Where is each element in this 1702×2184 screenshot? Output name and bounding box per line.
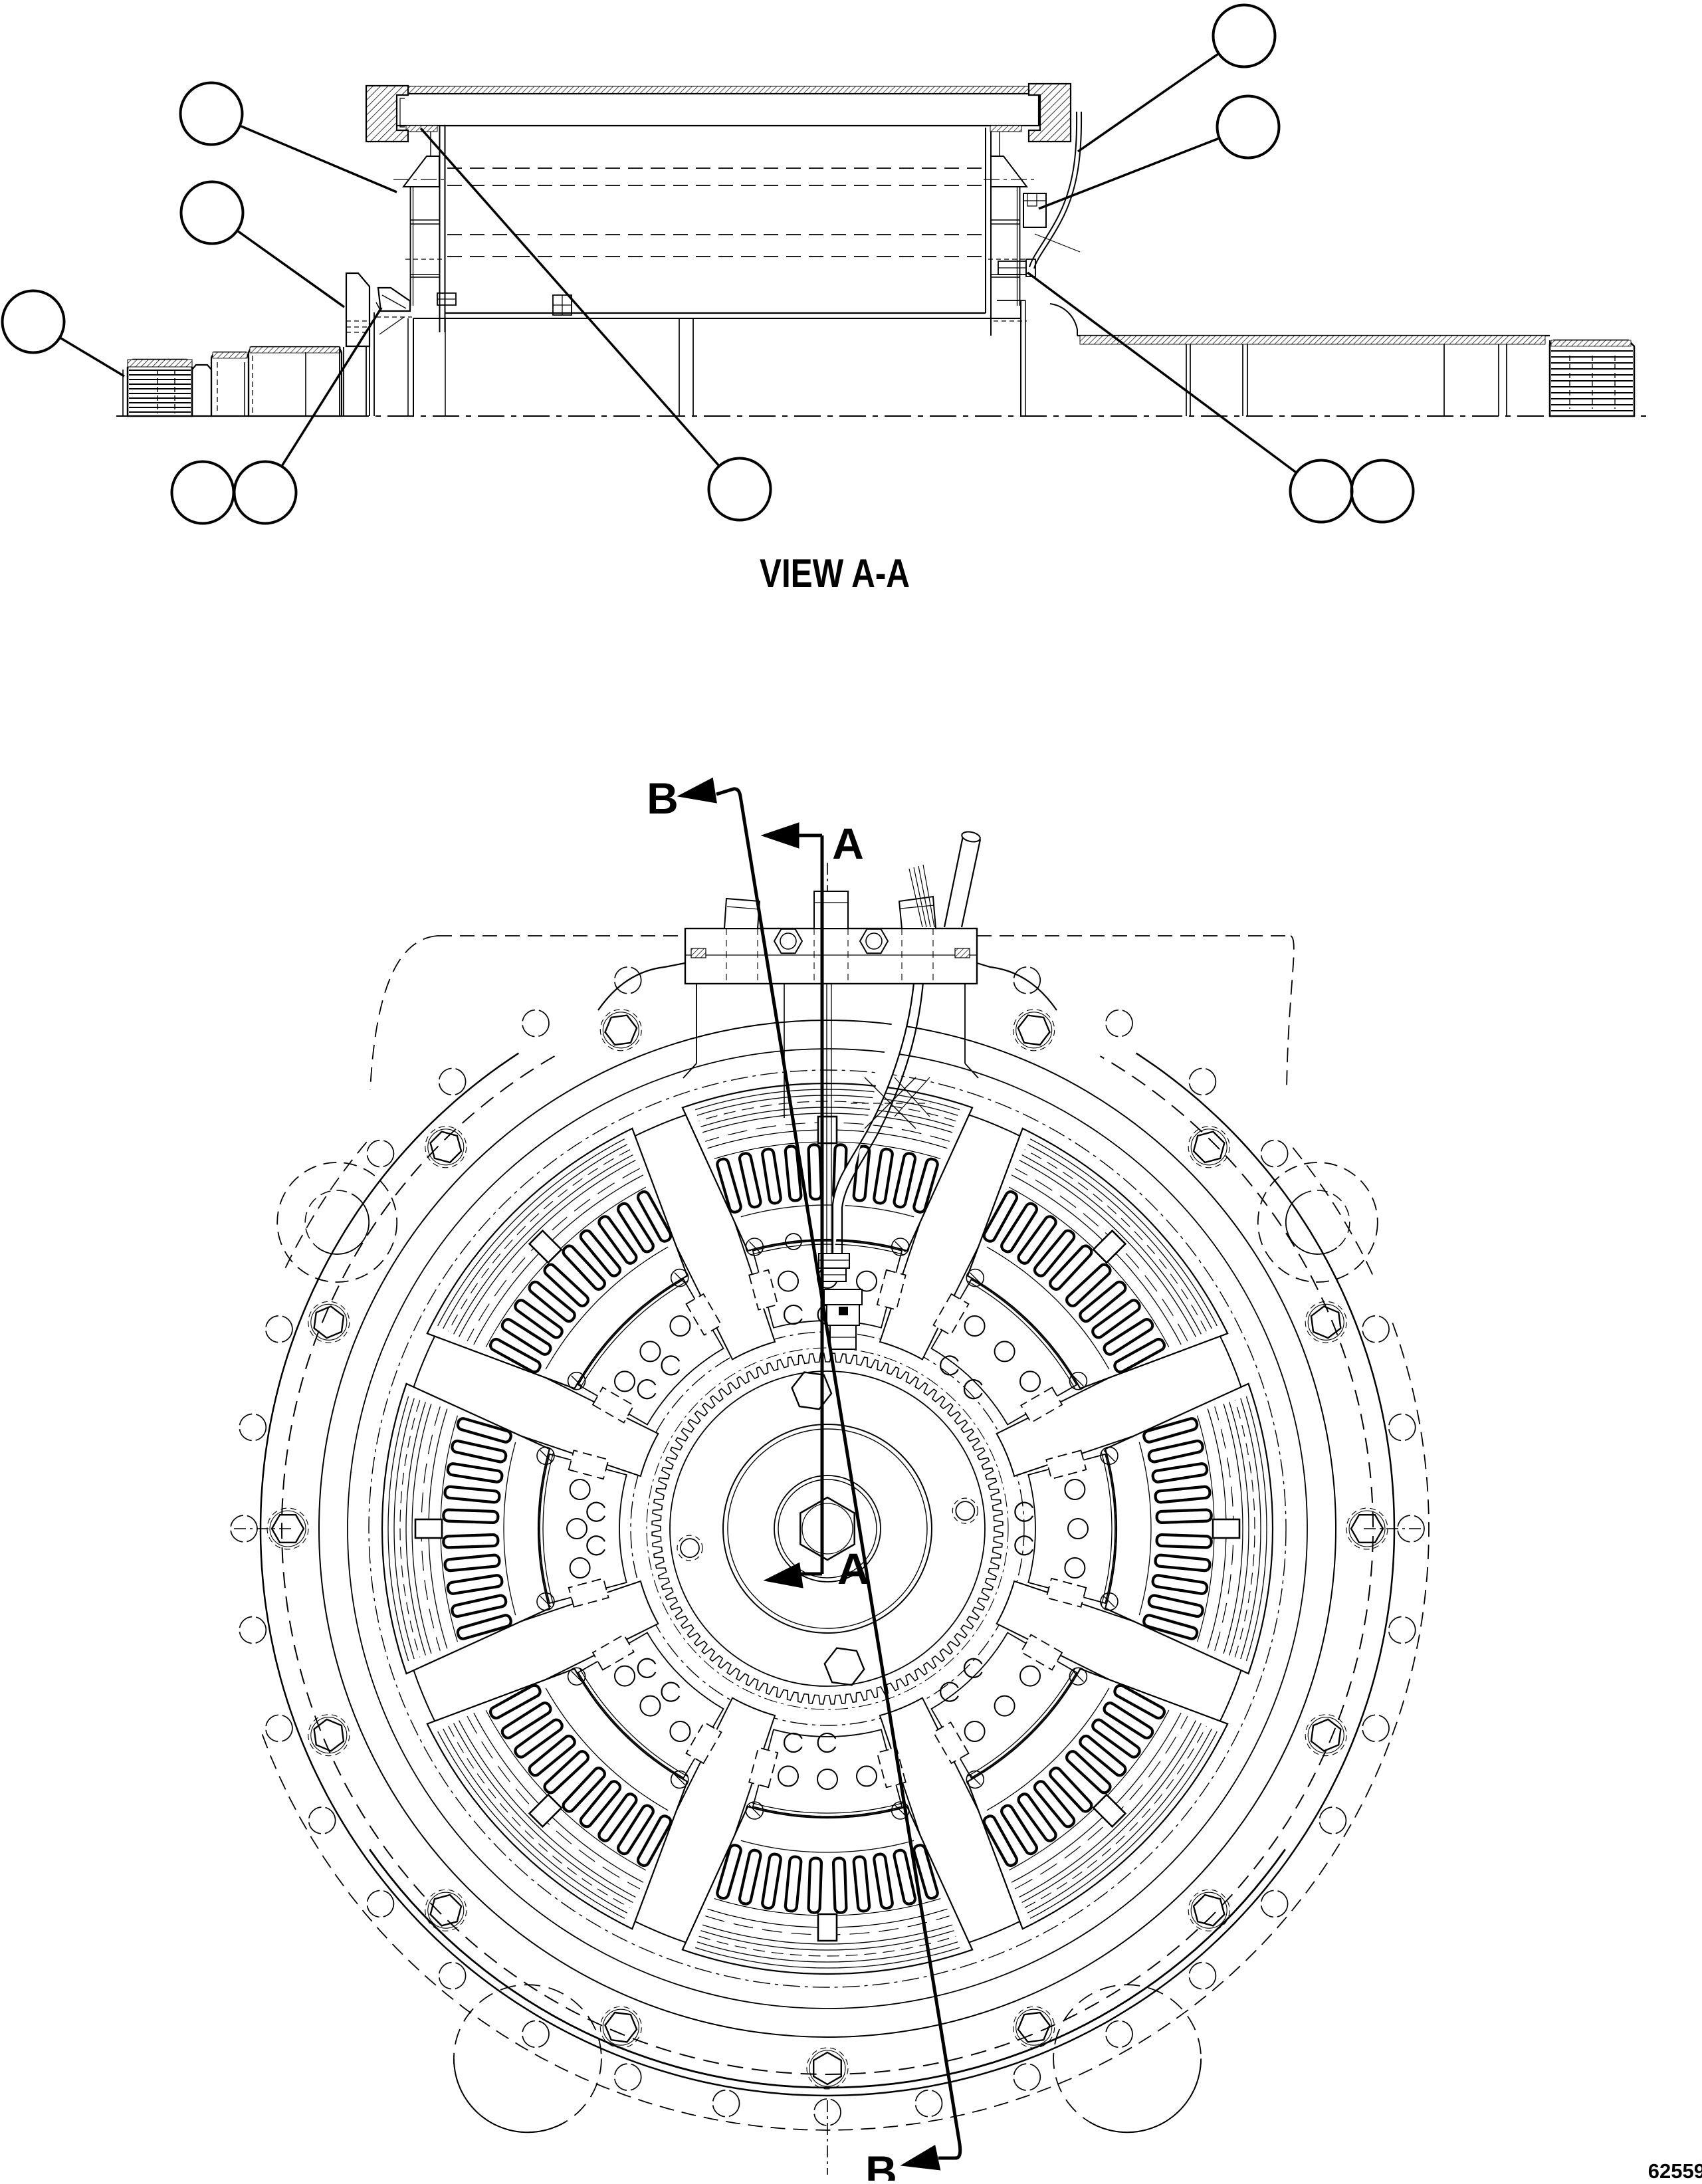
svg-text:VIEW A-A: VIEW A-A [760,551,910,596]
svg-text:B: B [865,2147,897,2181]
svg-text:B: B [647,774,679,823]
svg-text:A: A [832,819,864,868]
svg-text:62559: 62559 [1648,2159,1702,2181]
svg-text:A: A [837,1544,869,1593]
